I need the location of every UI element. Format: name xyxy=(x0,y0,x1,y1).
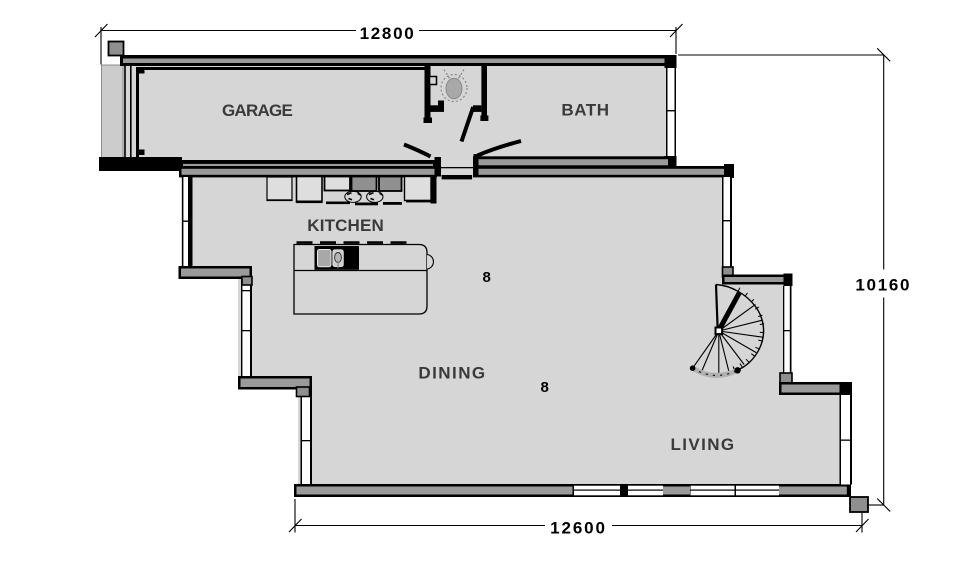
svg-text:BATH: BATH xyxy=(561,101,609,120)
svg-text:GARAGE: GARAGE xyxy=(222,101,293,120)
svg-text:12600: 12600 xyxy=(550,518,607,537)
svg-text:8: 8 xyxy=(541,379,549,396)
svg-text:KITCHEN: KITCHEN xyxy=(307,216,384,235)
svg-text:DINING: DINING xyxy=(418,364,486,383)
svg-text:12800: 12800 xyxy=(360,24,416,43)
svg-text:LIVING: LIVING xyxy=(670,435,735,454)
svg-text:10160: 10160 xyxy=(855,275,911,294)
svg-text:8: 8 xyxy=(483,269,491,286)
